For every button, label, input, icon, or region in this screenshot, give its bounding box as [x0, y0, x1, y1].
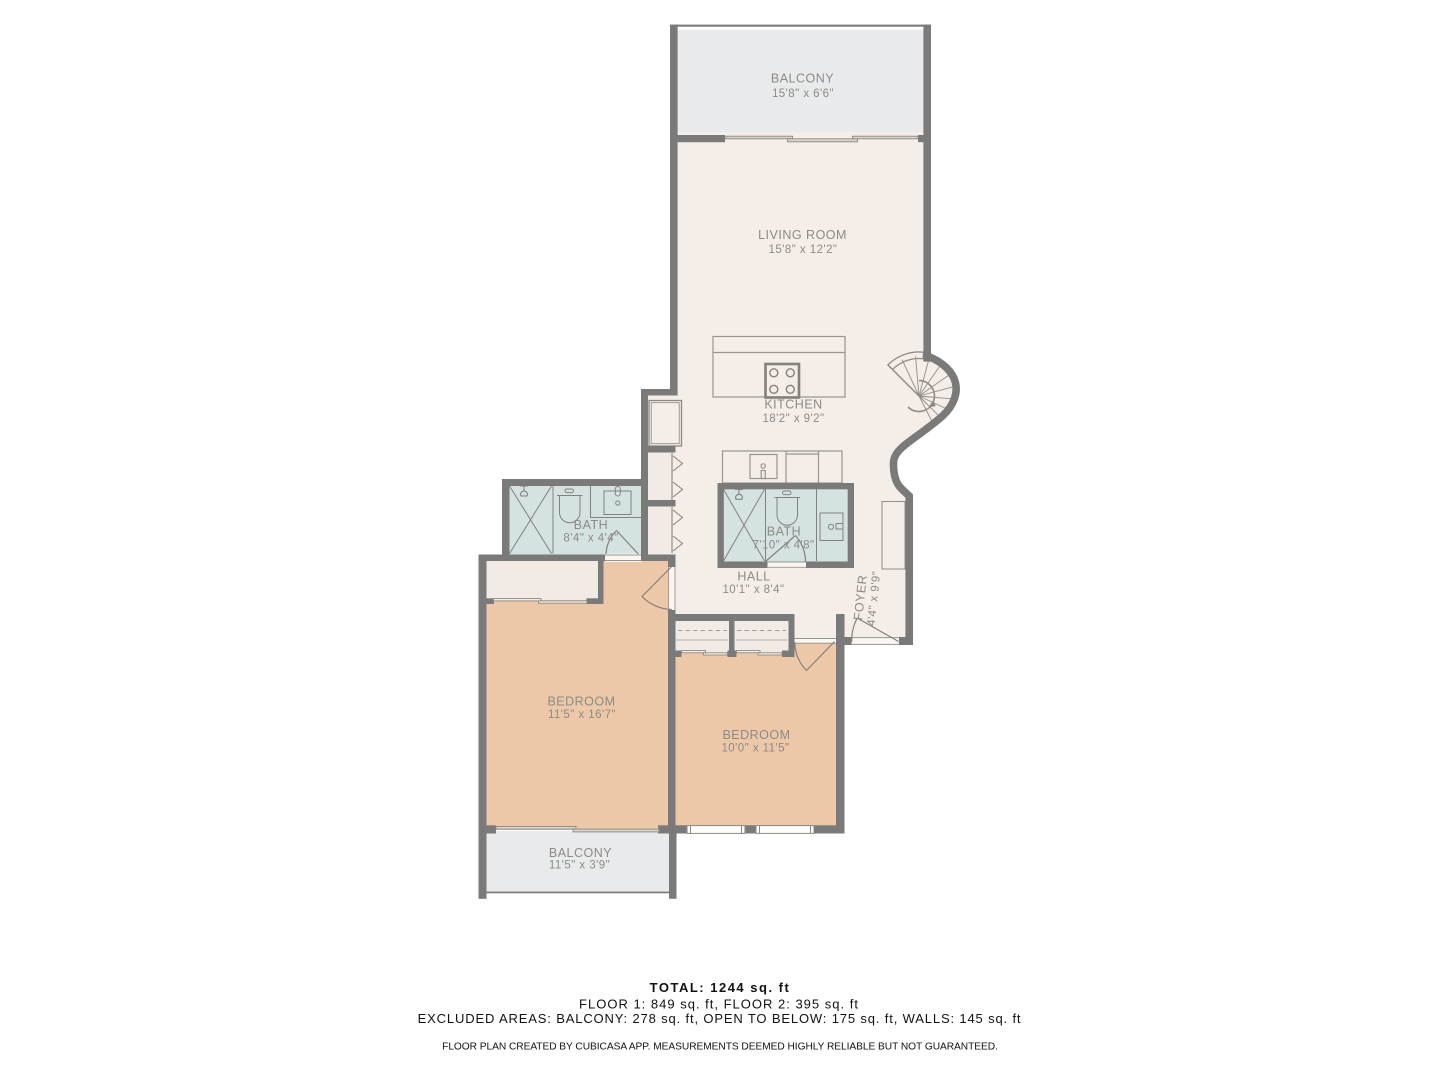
svg-text:BEDROOM: BEDROOM	[722, 728, 790, 742]
svg-text:10'0" x 11'5": 10'0" x 11'5"	[721, 743, 789, 755]
svg-text:EXCLUDED AREAS: BALCONY: 278 s: EXCLUDED AREAS: BALCONY: 278 sq. ft, OPE…	[418, 1011, 1022, 1026]
svg-text:BALCONY: BALCONY	[549, 846, 612, 860]
svg-text:TOTAL: 1244 sq. ft: TOTAL: 1244 sq. ft	[650, 980, 791, 995]
svg-text:11'5" x 16'7": 11'5" x 16'7"	[548, 709, 616, 721]
svg-text:FLOOR 1: 849 sq. ft, FLOOR 2:: FLOOR 1: 849 sq. ft, FLOOR 2: 395 sq. ft	[579, 997, 859, 1012]
svg-text:15'8" x 6'6": 15'8" x 6'6"	[772, 88, 834, 100]
svg-text:BEDROOM: BEDROOM	[547, 695, 615, 709]
svg-text:HALL: HALL	[737, 570, 770, 584]
svg-text:15'8" x 12'2": 15'8" x 12'2"	[769, 244, 838, 256]
svg-text:7'10" x 4'8": 7'10" x 4'8"	[752, 540, 814, 552]
svg-text:BALCONY: BALCONY	[771, 72, 834, 86]
svg-text:10'1" x 8'4": 10'1" x 8'4"	[722, 584, 784, 596]
svg-text:KITCHEN: KITCHEN	[764, 398, 822, 412]
svg-text:18'2" x 9'2": 18'2" x 9'2"	[762, 413, 824, 425]
svg-text:FLOOR PLAN CREATED BY CUBICASA: FLOOR PLAN CREATED BY CUBICASA APP. MEAS…	[442, 1042, 998, 1053]
svg-text:11'5" x 3'9": 11'5" x 3'9"	[549, 860, 610, 872]
svg-text:BATH: BATH	[574, 518, 608, 532]
svg-text:LIVING ROOM: LIVING ROOM	[758, 228, 847, 242]
svg-text:8'4" x 4'4": 8'4" x 4'4"	[563, 533, 618, 545]
svg-text:BATH: BATH	[767, 525, 801, 539]
